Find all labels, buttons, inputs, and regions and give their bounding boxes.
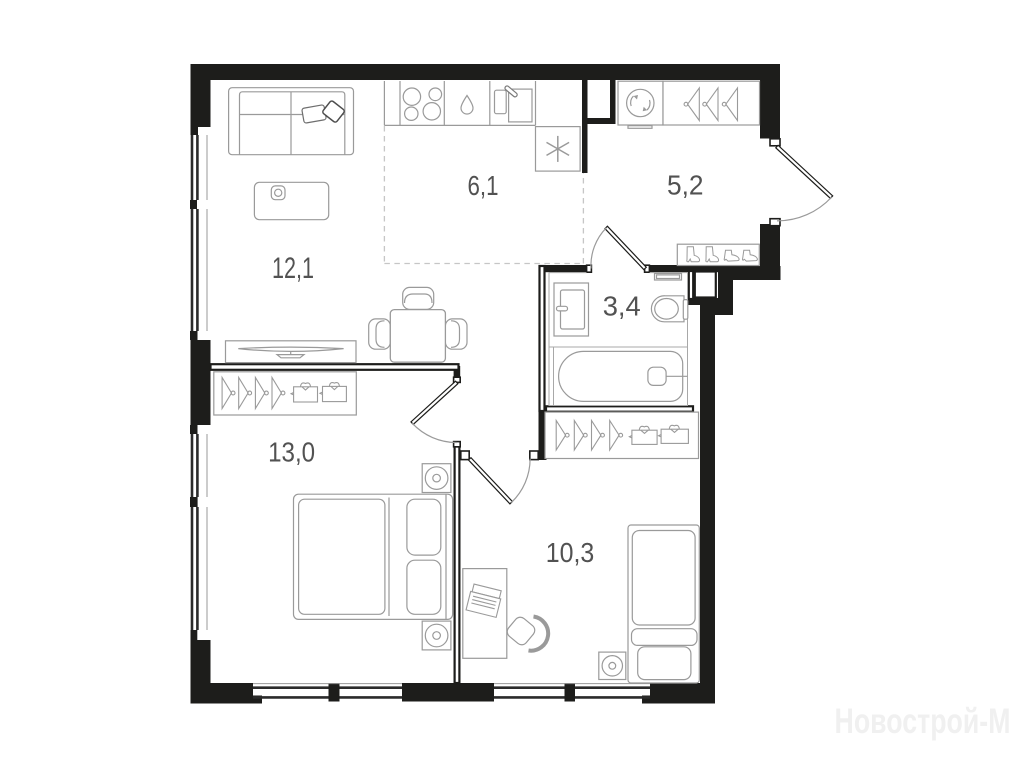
svg-text:3,4: 3,4 [603, 291, 641, 322]
svg-text:13,0: 13,0 [268, 437, 315, 468]
svg-text:5,2: 5,2 [667, 170, 704, 201]
svg-text:12,1: 12,1 [272, 252, 314, 285]
svg-text:10,3: 10,3 [546, 537, 595, 568]
svg-text:6,1: 6,1 [468, 170, 499, 201]
svg-text:Новострой-М: Новострой-М [835, 702, 1011, 741]
